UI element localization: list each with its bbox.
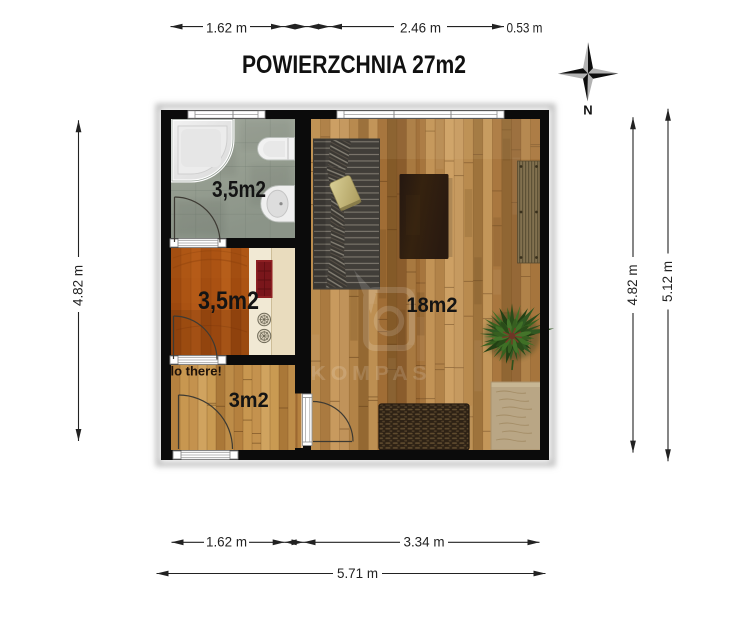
svg-text:3,5m2: 3,5m2 <box>198 287 259 315</box>
svg-text:18m2: 18m2 <box>407 292 458 317</box>
svg-text:N: N <box>583 103 592 118</box>
svg-text:5.71 m: 5.71 m <box>337 566 378 581</box>
svg-text:3m2: 3m2 <box>229 388 269 412</box>
svg-text:2.46 m: 2.46 m <box>400 21 441 36</box>
svg-text:POWIERZCHNIA 27m2: POWIERZCHNIA 27m2 <box>242 51 466 79</box>
svg-text:1.62 m: 1.62 m <box>206 21 247 36</box>
svg-text:4.82 m: 4.82 m <box>625 265 640 306</box>
svg-text:0.53 m: 0.53 m <box>507 21 543 36</box>
svg-text:3.34 m: 3.34 m <box>404 535 445 550</box>
svg-text:KOMPAS: KOMPAS <box>311 363 432 385</box>
svg-text:lo there!: lo there! <box>171 364 222 379</box>
svg-text:4.82 m: 4.82 m <box>71 265 86 306</box>
svg-text:3,5m2: 3,5m2 <box>212 176 266 202</box>
svg-text:5.12 m: 5.12 m <box>660 261 675 302</box>
svg-text:1.62 m: 1.62 m <box>206 535 247 550</box>
